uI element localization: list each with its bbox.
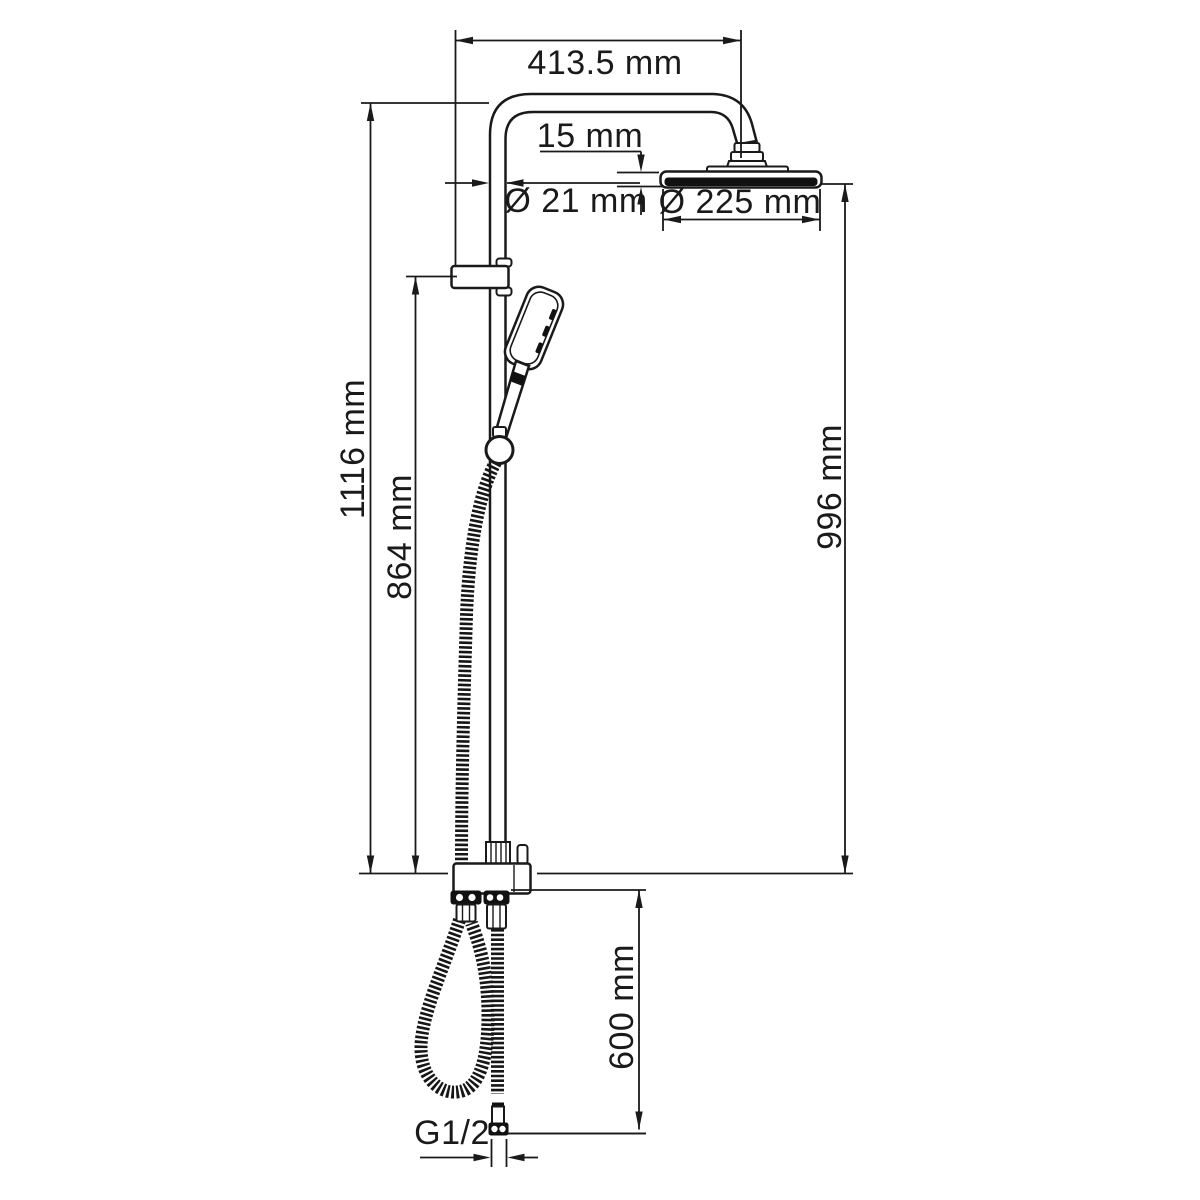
dim-outlet-drop-label: 600 mm [603, 944, 641, 1070]
dim-head-drop-label: 15 mm [537, 117, 643, 155]
drawing-page: 413.5 mm 1116 mm 864 mm 996 mm 600 mm [0, 0, 1200, 1200]
g-half-connector [489, 1103, 509, 1136]
diagram-canvas: 413.5 mm 1116 mm 864 mm 996 mm 600 mm [0, 0, 1200, 1200]
wall-bracket [452, 266, 509, 288]
hose-loop [421, 920, 488, 1092]
dim-head-diameter-label: Ø 225 mm [659, 183, 822, 221]
diverter-knob [518, 845, 528, 864]
dim-pipe-diameter-label: Ø 21 mm [504, 182, 647, 220]
dim-arm-length-label: 413.5 mm [527, 44, 682, 82]
dim-head-diameter: Ø 225 mm [659, 183, 822, 231]
dim-thread-label: G1/2 [414, 1114, 490, 1152]
dim-bracket-height-label: 864 mm [381, 474, 419, 600]
diverter-body [454, 864, 531, 894]
dim-head-height: 996 mm [537, 184, 853, 874]
dim-outlet-drop: 600 mm [508, 890, 646, 1134]
dim-total-height-label: 1116 mm [334, 379, 372, 519]
dim-bracket-height: 864 mm [381, 277, 457, 874]
dim-pipe-diameter: Ø 21 mm [445, 179, 648, 220]
slider-knob [486, 437, 513, 464]
dim-head-height-label: 996 mm [811, 424, 849, 550]
dim-thread: G1/2 [414, 1114, 646, 1167]
overhead-connector [707, 143, 788, 174]
